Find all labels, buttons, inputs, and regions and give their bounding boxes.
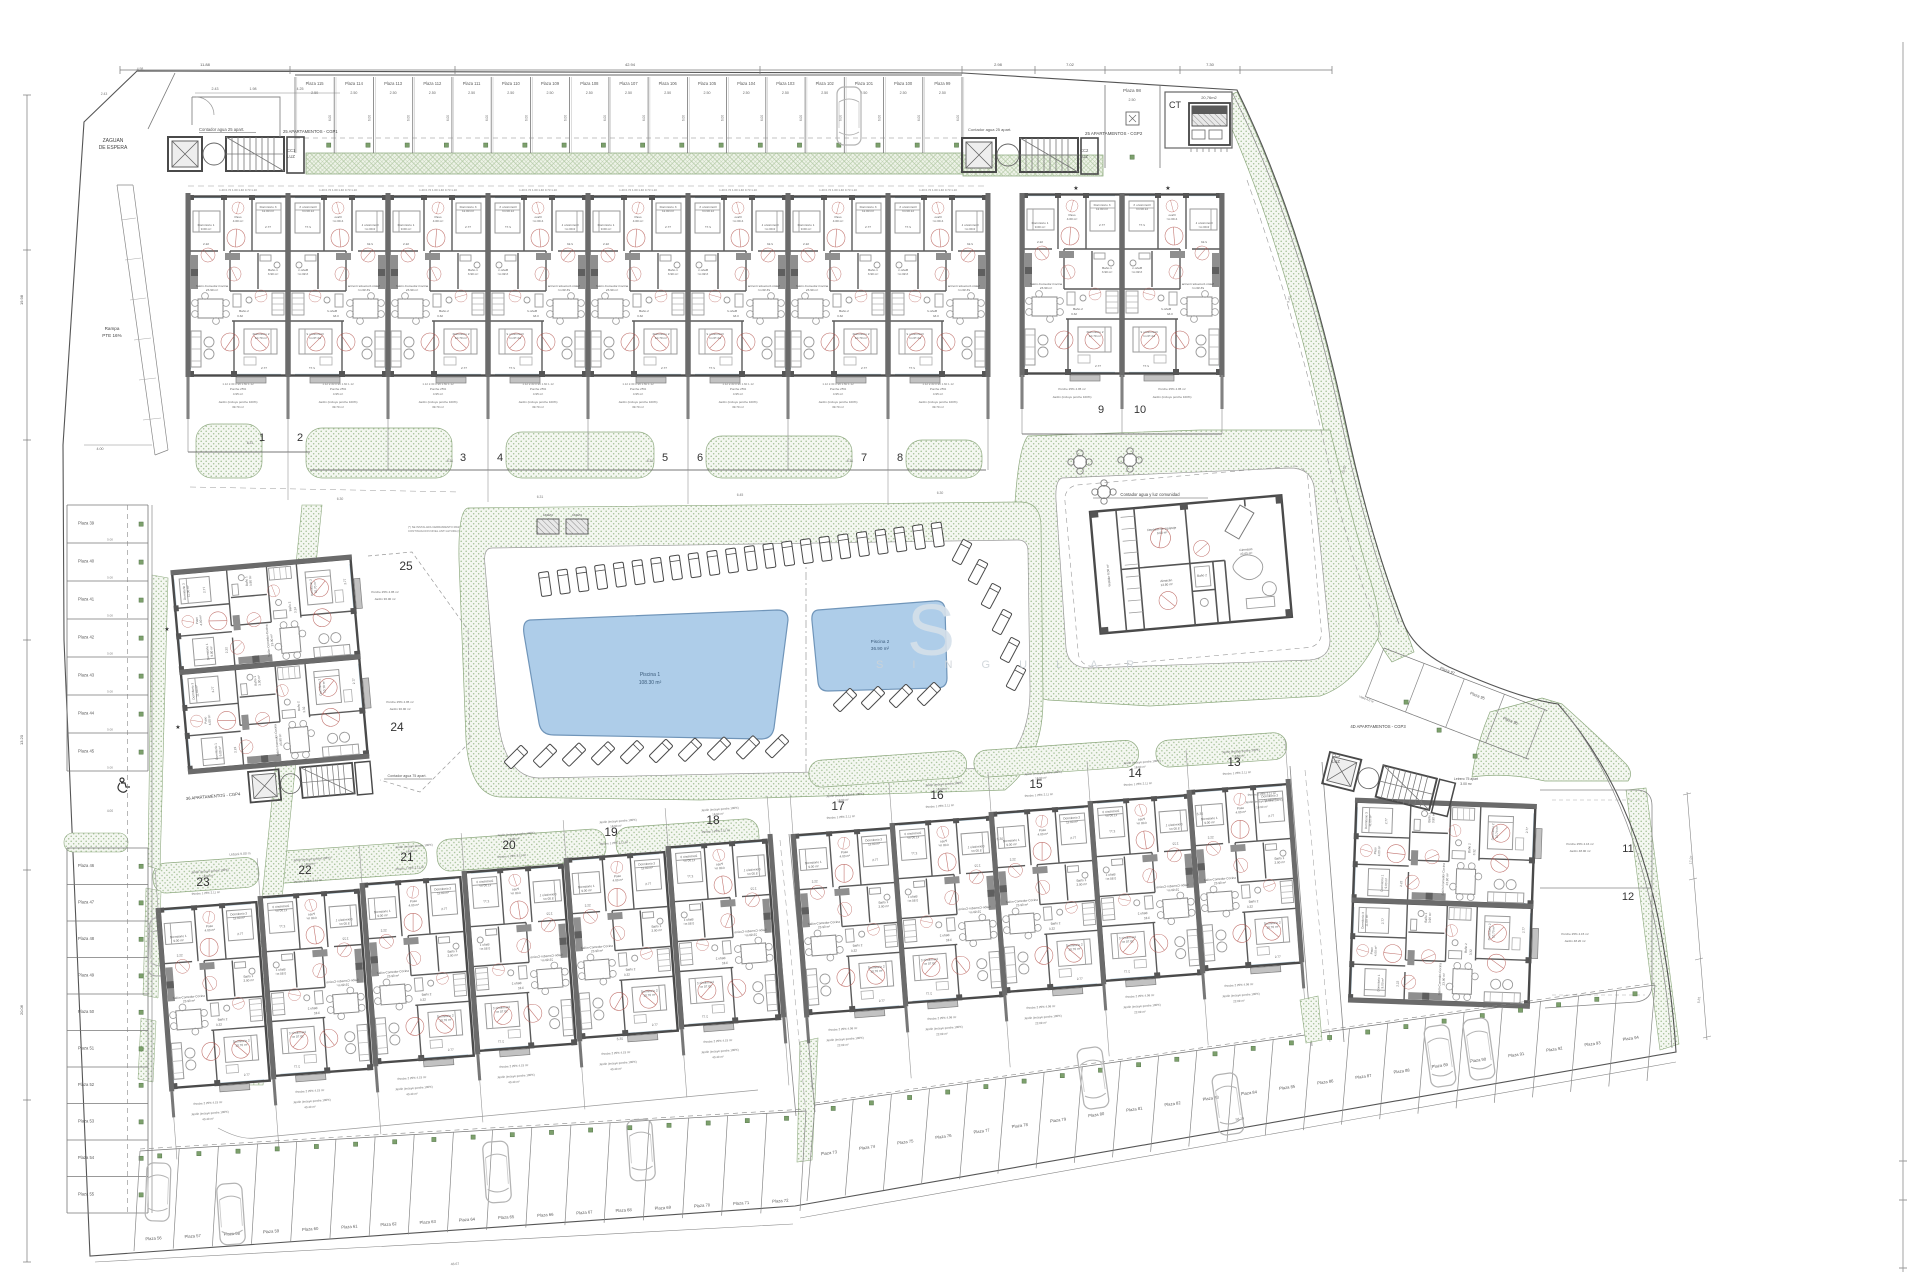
svg-text:25: 25 (399, 559, 413, 573)
svg-text:Plaza 81: Plaza 81 (1126, 1105, 1143, 1112)
svg-text:Plaza 98: Plaza 98 (1123, 88, 1141, 93)
svg-text:6.00: 6.00 (956, 115, 960, 121)
svg-text:Plaza 48: Plaza 48 (78, 936, 95, 941)
svg-text:1.12 2.30 0.96 1.60 1.12: 1.12 2.30 0.96 1.60 1.12 (722, 382, 754, 386)
svg-text:36.90 m²: 36.90 m² (871, 646, 890, 651)
svg-text:Plaza 101: Plaza 101 (855, 81, 874, 86)
svg-text:6.00: 6.00 (917, 115, 921, 121)
svg-text:2.50: 2.50 (1129, 98, 1136, 102)
svg-text:18.90 m²: 18.90 m² (508, 837, 520, 842)
svg-text:2: 2 (297, 432, 303, 444)
svg-text:Jardín (incluye porche 100%): Jardín (incluye porche 100%) (925, 1025, 963, 1032)
svg-text:Plaza 77: Plaza 77 (973, 1127, 990, 1134)
svg-text:3: 3 (460, 452, 466, 464)
svg-text:Porche 2 25% 4.15 m²: Porche 2 25% 4.15 m² (295, 1088, 324, 1094)
svg-text:19.98: 19.98 (19, 294, 24, 305)
svg-text:8: 8 (897, 452, 903, 464)
svg-text:40.40 m²: 40.40 m² (304, 1105, 316, 1110)
svg-text:Plaza 60: Plaza 60 (302, 1226, 319, 1232)
svg-text:Porche 2 25% 4.15 m²: Porche 2 25% 4.15 m² (499, 1063, 528, 1069)
svg-text:Plaza 57: Plaza 57 (184, 1233, 201, 1239)
svg-text:Plaza 53: Plaza 53 (78, 1118, 95, 1123)
svg-text:Porche 2 25% 4.06 m²: Porche 2 25% 4.06 m² (1224, 982, 1253, 988)
svg-text:Plaza 42: Plaza 42 (78, 634, 95, 639)
svg-text:Plaza 65: Plaza 65 (498, 1214, 515, 1220)
svg-text:6.00: 6.00 (407, 115, 411, 121)
svg-text:4.95 m²: 4.95 m² (733, 392, 743, 396)
svg-text:Porche 1 25% 2.11 m²: Porche 1 25% 2.11 m² (294, 878, 323, 884)
svg-text:1.40 0.72 1.60 1.40 0.73 1.10: 1.40 0.72 1.60 1.40 0.73 1.10 (319, 188, 357, 192)
svg-text:1.98: 1.98 (250, 87, 257, 91)
svg-text:1.40 0.72 1.60 1.40 0.73 1.10: 1.40 0.72 1.60 1.40 0.73 1.10 (419, 188, 457, 192)
svg-text:CC1: CC1 (287, 148, 296, 153)
svg-text:2.50: 2.50 (743, 91, 750, 95)
svg-text:Porche 25% 4.15 m²: Porche 25% 4.15 m² (1561, 932, 1588, 936)
svg-text:CT: CT (1169, 100, 1181, 110)
svg-text:Porche 25%: Porche 25% (430, 387, 447, 391)
svg-text:2.50: 2.50 (821, 91, 828, 95)
svg-text:Plaza 106: Plaza 106 (659, 81, 678, 86)
svg-text:9.47: 9.47 (1286, 296, 1292, 304)
svg-text:36 APARTAMENTOS - CGP4: 36 APARTAMENTOS - CGP4 (186, 791, 242, 801)
svg-text:42.94: 42.94 (625, 62, 636, 67)
svg-text:Plaza 52: Plaza 52 (78, 1082, 95, 1087)
svg-text:Letrero 75 apart: Letrero 75 apart (1454, 777, 1478, 781)
svg-text:Plaza 49: Plaza 49 (78, 972, 95, 977)
svg-text:Porche 2 25% 4.06 m²: Porche 2 25% 4.06 m² (927, 1015, 956, 1021)
svg-text:18.90 m²: 18.90 m² (304, 862, 316, 867)
svg-text:Porche 25% 4.16 m²: Porche 25% 4.16 m² (1566, 842, 1593, 846)
svg-text:Contador agua y luz comunidad: Contador agua y luz comunidad (1120, 492, 1180, 497)
svg-text:4.95 m²: 4.95 m² (233, 392, 243, 396)
svg-text:12: 12 (1622, 891, 1634, 903)
svg-text:40.40 m²: 40.40 m² (202, 1117, 214, 1122)
svg-text:2.50: 2.50 (900, 91, 907, 95)
svg-text:Plaza 40: Plaza 40 (78, 558, 95, 563)
svg-text:Porche 25%: Porche 25% (330, 387, 347, 391)
svg-text:Plaza 69: Plaza 69 (654, 1205, 671, 1211)
svg-text:6.35: 6.35 (616, 1037, 623, 1041)
svg-text:2.50: 2.50 (468, 91, 475, 95)
svg-text:Plaza 72: Plaza 72 (772, 1198, 789, 1204)
svg-text:1.12 2.30 0.96 1.60 1.12: 1.12 2.30 0.96 1.60 1.12 (322, 382, 354, 386)
svg-text:39.70 m²: 39.70 m² (832, 405, 844, 409)
svg-text:Plaza 86: Plaza 86 (1317, 1078, 1334, 1085)
svg-text:Porche 25%: Porche 25% (930, 387, 947, 391)
svg-text:4.95 m²: 4.95 m² (633, 392, 643, 396)
svg-text:Piscina 2: Piscina 2 (871, 639, 890, 644)
svg-text:6.00: 6.00 (721, 115, 725, 121)
svg-text:2.50: 2.50 (586, 91, 593, 95)
svg-text:Plaza 47: Plaza 47 (78, 899, 95, 904)
svg-text:Plaza 68: Plaza 68 (615, 1207, 632, 1213)
svg-text:Plaza 112: Plaza 112 (423, 81, 442, 86)
svg-text:2.50: 2.50 (782, 91, 789, 95)
svg-text:Plaza 61: Plaza 61 (341, 1223, 358, 1229)
svg-text:Plaza 102: Plaza 102 (816, 81, 835, 86)
svg-text:Plaza 64: Plaza 64 (459, 1216, 476, 1222)
svg-text:20.06: 20.06 (19, 1004, 24, 1015)
svg-text:Plaza 85: Plaza 85 (1279, 1084, 1296, 1091)
svg-text:39.70 m²: 39.70 m² (232, 405, 244, 409)
svg-text:6.30: 6.30 (416, 1057, 423, 1061)
svg-text:Porche 25% 4.95 m²: Porche 25% 4.95 m² (371, 590, 398, 594)
svg-text:5.00: 5.00 (107, 689, 113, 693)
svg-text:Plaza 50: Plaza 50 (78, 1009, 95, 1014)
svg-text:6.00: 6.00 (642, 115, 646, 121)
svg-text:Plaza 88: Plaza 88 (1393, 1067, 1410, 1074)
svg-text:7.30: 7.30 (1206, 62, 1215, 67)
svg-text:Plaza 78: Plaza 78 (1011, 1122, 1028, 1129)
svg-text:22.09 m²: 22.09 m² (936, 1032, 948, 1037)
svg-text:Plaza 99: Plaza 99 (934, 81, 951, 86)
svg-text:Plaza 100: Plaza 100 (894, 81, 913, 86)
svg-text:Contador agua 25 apart.: Contador agua 25 apart. (199, 127, 244, 132)
svg-text:4.95 m²: 4.95 m² (533, 392, 543, 396)
svg-text:Plaza 92: Plaza 92 (1546, 1045, 1563, 1052)
svg-text:CASETA: CASETA (572, 513, 582, 517)
svg-text:4.95 m²: 4.95 m² (933, 392, 943, 396)
svg-text:11.88: 11.88 (200, 62, 210, 67)
svg-text:Plaza 115: Plaza 115 (306, 81, 325, 86)
svg-text:Jardín (incluye porche 100%): Jardín (incluye porche 100%) (191, 1110, 229, 1117)
svg-text:40.40 m²: 40.40 m² (508, 1080, 520, 1085)
svg-text:CC3: CC3 (1332, 753, 1341, 758)
svg-text:Jardín (incluye porche 100%): Jardín (incluye porche 100%) (1024, 1014, 1062, 1021)
svg-text:★: ★ (1073, 185, 1078, 192)
svg-text:Porche 25%: Porche 25% (230, 387, 247, 391)
svg-text:Porche 25% 4.95 m²: Porche 25% 4.95 m² (1058, 387, 1085, 391)
svg-text:2.50: 2.50 (664, 91, 671, 95)
svg-text:18.90 m²: 18.90 m² (406, 849, 418, 854)
svg-text:5.00: 5.00 (107, 613, 113, 617)
svg-text:Plaza 114: Plaza 114 (345, 81, 364, 86)
svg-text:6.30: 6.30 (337, 497, 344, 501)
svg-text:17.07: 17.07 (1689, 855, 1694, 864)
svg-text:Jardín (incluye porche 100%): Jardín (incluye porche 100%) (1052, 395, 1091, 399)
svg-text:6.00: 6.00 (446, 115, 450, 121)
svg-text:Contador agua 75 apart.: Contador agua 75 apart. (388, 774, 427, 778)
svg-text:Jardín (incluye porche 100%): Jardín (incluye porche 100%) (818, 400, 857, 404)
svg-text:Jardín (incluye porche 100%): Jardín (incluye porche 100%) (618, 400, 657, 404)
svg-text:Jardín (incluye porche 100%): Jardín (incluye porche 100%) (1222, 992, 1260, 999)
svg-text:Porche 2 25% 4.15 m²: Porche 2 25% 4.15 m² (601, 1050, 630, 1056)
svg-text:Porche 2 25% 4.06 m²: Porche 2 25% 4.06 m² (1026, 1004, 1055, 1010)
svg-text:6.31: 6.31 (847, 459, 854, 463)
svg-text:9: 9 (1098, 404, 1104, 416)
svg-text:4.00: 4.00 (97, 447, 104, 451)
svg-text:4.00: 4.00 (107, 809, 113, 813)
svg-text:6.31: 6.31 (537, 495, 544, 499)
svg-text:39.70 m²: 39.70 m² (432, 405, 444, 409)
svg-text:Plaza 56: Plaza 56 (145, 1235, 162, 1241)
svg-text:Plaza 97: Plaza 97 (1439, 665, 1456, 676)
svg-text:Plaza 46: Plaza 46 (78, 863, 95, 868)
svg-text:2.50: 2.50 (507, 91, 514, 95)
svg-text:2.50: 2.50 (390, 91, 397, 95)
svg-text:108.30 m²: 108.30 m² (639, 680, 662, 686)
svg-text:24: 24 (390, 720, 404, 734)
svg-text:Plaza 103: Plaza 103 (776, 81, 795, 86)
svg-text:Plaza 113: Plaza 113 (384, 81, 403, 86)
svg-text:1.12 2.30 0.96 1.60 1.12: 1.12 2.30 0.96 1.60 1.12 (422, 382, 454, 386)
svg-text:6.00: 6.00 (524, 115, 528, 121)
svg-text:Plaza 76: Plaza 76 (935, 1133, 952, 1140)
svg-text:★: ★ (164, 626, 169, 633)
svg-text:Plaza 66: Plaza 66 (537, 1212, 554, 1218)
svg-text:6.00: 6.00 (368, 115, 372, 121)
svg-text:5: 5 (662, 452, 668, 464)
svg-text:18.90 m²: 18.90 m² (610, 824, 622, 829)
svg-text:Porche 25%: Porche 25% (730, 387, 747, 391)
svg-text:Jardín 48.90 m²: Jardín 48.90 m² (1569, 849, 1590, 853)
svg-text:Plaza 55: Plaza 55 (78, 1191, 95, 1196)
svg-text:11: 11 (1622, 843, 1633, 855)
svg-text:Porche 2 25% 4.06 m²: Porche 2 25% 4.06 m² (828, 1026, 857, 1032)
svg-text:Plaza 80: Plaza 80 (1088, 1111, 1105, 1118)
svg-text:Plaza 79: Plaza 79 (1050, 1116, 1067, 1123)
svg-text:18.90 m²: 18.90 m² (1256, 805, 1268, 810)
svg-text:★: ★ (175, 724, 180, 731)
svg-text:6.30: 6.30 (937, 491, 944, 495)
svg-text:Jardín 36.00 m²: Jardín 36.00 m² (374, 597, 395, 601)
svg-text:Porche 1 25% 2.11 m²: Porche 1 25% 2.11 m² (827, 814, 856, 820)
svg-text:25 APARTAMENTOS - CGP2: 25 APARTAMENTOS - CGP2 (1085, 131, 1143, 136)
svg-text:Plaza 91: Plaza 91 (1508, 1051, 1525, 1058)
svg-text:1.40 0.72 1.60 1.40 0.73 1.10: 1.40 0.72 1.60 1.40 0.73 1.10 (519, 188, 557, 192)
svg-text:1.40 0.72 1.60 1.40 0.73 1.10: 1.40 0.72 1.60 1.40 0.73 1.10 (719, 188, 757, 192)
svg-text:25 APARTAMENTOS - CGP1: 25 APARTAMENTOS - CGP1 (283, 129, 338, 134)
svg-text:Jardín (incluye porche 100%): Jardín (incluye porche 100%) (518, 400, 557, 404)
svg-text:Plaza 51: Plaza 51 (78, 1045, 95, 1050)
svg-text:1.12 2.30 0.96 1.60 1.12: 1.12 2.30 0.96 1.60 1.12 (622, 382, 654, 386)
svg-text:Plaza 45: Plaza 45 (78, 748, 95, 753)
svg-text:Porche 25%: Porche 25% (630, 387, 647, 391)
svg-text:Jardín 48.20 m²: Jardín 48.20 m² (1564, 939, 1585, 943)
svg-text:Plaza 70: Plaza 70 (694, 1202, 711, 1208)
svg-text:Porche 1 25% 2.11 m²: Porche 1 25% 2.11 m² (1025, 792, 1054, 798)
svg-text:Jardín (incluye porche 100%): Jardín (incluye porche 100%) (1152, 395, 1191, 399)
svg-text:DE ESPERA: DE ESPERA (99, 145, 128, 151)
svg-text:Plaza 71: Plaza 71 (733, 1200, 750, 1206)
svg-text:Plaza 110: Plaza 110 (502, 81, 521, 86)
svg-text:7: 7 (861, 452, 867, 464)
svg-text:39.70 m²: 39.70 m² (732, 405, 744, 409)
svg-text:6.00: 6.00 (328, 115, 332, 121)
svg-text:4: 4 (497, 452, 503, 464)
svg-text:Jardín (incluye porche 100%): Jardín (incluye porche 100%) (718, 400, 757, 404)
svg-text:Plaza 82: Plaza 82 (1164, 1100, 1181, 1107)
svg-text:Vado 4.0 m: Vado 4.0 m (1359, 694, 1375, 703)
svg-text:2.98: 2.98 (994, 62, 1003, 67)
svg-text:22.09 m²: 22.09 m² (1233, 999, 1245, 1004)
svg-text:Porche 2 25% 4.15 m²: Porche 2 25% 4.15 m² (703, 1038, 732, 1044)
svg-text:Porche 1 25% 2.11 m²: Porche 1 25% 2.11 m² (1223, 770, 1252, 776)
svg-text:40.40 m²: 40.40 m² (610, 1067, 622, 1072)
svg-text:Porche 25%: Porche 25% (530, 387, 547, 391)
svg-text:LUZ: LUZ (1332, 759, 1340, 764)
svg-text:Jardín (incluye porche 100%): Jardín (incluye porche 100%) (293, 1098, 331, 1105)
svg-text:Jardín (incluye porche 100%): Jardín (incluye porche 100%) (497, 1073, 535, 1080)
svg-text:2.43: 2.43 (101, 92, 108, 96)
svg-text:1.40 0.72 1.60 1.40 0.73 1.10: 1.40 0.72 1.60 1.40 0.73 1.10 (919, 188, 957, 192)
svg-text:22.09 m²: 22.09 m² (1134, 1010, 1146, 1015)
svg-text:Jardín (incluye porche 100%): Jardín (incluye porche 100%) (318, 400, 357, 404)
svg-text:40.40 m²: 40.40 m² (712, 1055, 724, 1060)
svg-text:1.12 2.30 0.96 1.60 1.12: 1.12 2.30 0.96 1.60 1.12 (922, 382, 954, 386)
svg-text:4.25: 4.25 (297, 87, 304, 91)
svg-text:2.50: 2.50 (429, 91, 436, 95)
svg-text:39.70 m²: 39.70 m² (532, 405, 544, 409)
svg-text:4.95 m²: 4.95 m² (433, 392, 443, 396)
svg-text:Jardín (incluye porche 100%): Jardín (incluye porche 100%) (218, 400, 257, 404)
svg-text:2.50: 2.50 (350, 91, 357, 95)
svg-text:39.70 m²: 39.70 m² (932, 405, 944, 409)
svg-text:13.20: 13.20 (19, 734, 24, 745)
svg-text:Plaza 84: Plaza 84 (1240, 1089, 1257, 1096)
svg-text:Plaza 104: Plaza 104 (737, 81, 756, 86)
svg-text:Jardín 30.90 m²: Jardín 30.90 m² (389, 707, 410, 711)
svg-text:22.09 m²: 22.09 m² (837, 1043, 849, 1048)
svg-text:Plaza 39: Plaza 39 (78, 520, 95, 525)
svg-text:1.12 2.30 0.96 1.60 1.12: 1.12 2.30 0.96 1.60 1.12 (222, 382, 254, 386)
svg-text:6.45: 6.45 (737, 493, 744, 497)
svg-text:Contador agua 25 apart.: Contador agua 25 apart. (968, 127, 1011, 132)
svg-text:Plaza 74: Plaza 74 (859, 1144, 876, 1151)
svg-text:Porche 25% 4.95 m²: Porche 25% 4.95 m² (1158, 387, 1185, 391)
svg-text:Plaza 89: Plaza 89 (1431, 1062, 1448, 1069)
svg-text:6.00: 6.00 (603, 115, 607, 121)
svg-text:Plaza 105: Plaza 105 (698, 81, 717, 86)
svg-text:4.98: 4.98 (137, 67, 144, 71)
svg-text:18.90 m²: 18.90 m² (837, 798, 849, 803)
svg-text:2.50: 2.50 (547, 91, 554, 95)
svg-text:1: 1 (259, 432, 265, 444)
svg-text:S I N G U L A R: S I N G U L A R (876, 659, 1147, 671)
svg-text:Porche 1 25% 2.11 m²: Porche 1 25% 2.11 m² (1124, 781, 1153, 787)
svg-text:Plaza 90: Plaza 90 (1470, 1056, 1487, 1063)
svg-text:CC2: CC2 (1080, 148, 1089, 153)
svg-text:18.90 m²: 18.90 m² (1233, 754, 1245, 759)
svg-text:6.31: 6.31 (647, 459, 654, 463)
svg-text:18.90 m²: 18.90 m² (712, 812, 724, 817)
svg-text:18.90 m²: 18.90 m² (1134, 765, 1146, 770)
svg-text:Porche 2 25% 4.15 m²: Porche 2 25% 4.15 m² (397, 1075, 426, 1081)
svg-text:LUZ: LUZ (1080, 154, 1088, 159)
svg-text:Plaza 95: Plaza 95 (1469, 690, 1486, 701)
svg-text:Plaza 108: Plaza 108 (580, 81, 599, 86)
svg-text:5.00: 5.00 (107, 575, 113, 579)
svg-text:40.40 m²: 40.40 m² (406, 1092, 418, 1097)
svg-text:48.67: 48.67 (451, 1262, 460, 1266)
svg-text:6.31: 6.31 (447, 459, 454, 463)
svg-text:6.00: 6.00 (878, 115, 882, 121)
svg-text:6.30: 6.30 (1196, 812, 1203, 816)
svg-text:CASETA: CASETA (543, 513, 553, 517)
svg-text:Plaza 54: Plaza 54 (78, 1155, 95, 1160)
svg-text:Porche 1 25% 2.11 m²: Porche 1 25% 2.11 m² (926, 803, 955, 809)
svg-text:Plaza 109: Plaza 109 (541, 81, 560, 86)
svg-text:1.40 0.72 1.60 1.40 0.73 1.10: 1.40 0.72 1.60 1.40 0.73 1.10 (619, 188, 657, 192)
svg-text:6.00: 6.00 (760, 115, 764, 121)
svg-text:Plaza 93: Plaza 93 (1584, 1040, 1601, 1047)
svg-text:5.00: 5.00 (107, 537, 113, 541)
svg-text:1.40 0.72 1.60 1.40 0.73 1.10: 1.40 0.72 1.60 1.40 0.73 1.10 (819, 188, 857, 192)
svg-text:5.00: 5.00 (107, 765, 113, 769)
svg-text:Porche 2 25% 4.06 m²: Porche 2 25% 4.06 m² (1125, 993, 1154, 999)
svg-text:6.00: 6.00 (799, 115, 803, 121)
svg-text:2.43: 2.43 (212, 87, 219, 91)
svg-text:6.00: 6.00 (564, 115, 568, 121)
svg-text:20,76m2: 20,76m2 (1201, 95, 1217, 100)
svg-text:PTE 16%: PTE 16% (102, 333, 121, 338)
svg-text:Plaza 41: Plaza 41 (78, 596, 95, 601)
svg-text:LUZ: LUZ (287, 154, 295, 159)
svg-text:4.95 m²: 4.95 m² (833, 392, 843, 396)
svg-text:Jardín (incluye porche 100%): Jardín (incluye porche 100%) (826, 1036, 864, 1043)
svg-text:Plaza 62: Plaza 62 (380, 1221, 397, 1227)
svg-text:Plaza 44: Plaza 44 (78, 710, 95, 715)
svg-text:Plaza 111: Plaza 111 (463, 81, 481, 86)
svg-text:39.70 m²: 39.70 m² (632, 405, 644, 409)
svg-text:Rampa: Rampa (105, 326, 120, 331)
svg-text:4D APARTAMENTOS - CGP3: 4D APARTAMENTOS - CGP3 (1350, 724, 1406, 729)
svg-text:1.12 2.30 0.96 1.60 1.12: 1.12 2.30 0.96 1.60 1.12 (822, 382, 854, 386)
svg-text:4.95 m²: 4.95 m² (333, 392, 343, 396)
svg-text:6.00: 6.00 (485, 115, 489, 121)
svg-text:6.30: 6.30 (996, 837, 1003, 841)
svg-text:Jardín (incluye porche 100%): Jardín (incluye porche 100%) (418, 400, 457, 404)
svg-text:Piscina 1: Piscina 1 (640, 672, 661, 678)
svg-text:Jardín (incluye porche 100%): Jardín (incluye porche 100%) (918, 400, 957, 404)
svg-text:5.00: 5.00 (107, 651, 113, 655)
svg-text:Urbani 9.00 m: Urbani 9.00 m (229, 851, 251, 856)
svg-text:Plaza 94: Plaza 94 (1622, 1035, 1639, 1042)
svg-text:Plaza 87: Plaza 87 (1355, 1073, 1372, 1080)
svg-text:2.50: 2.50 (939, 91, 946, 95)
svg-text:ZAGUAN: ZAGUAN (103, 138, 124, 144)
svg-text:5.81: 5.81 (1697, 996, 1702, 1003)
svg-text:Plaza 67: Plaza 67 (576, 1209, 593, 1215)
svg-text:1.12 2.30 0.96 1.60 1.12: 1.12 2.30 0.96 1.60 1.12 (522, 382, 554, 386)
svg-text:2.50: 2.50 (704, 91, 711, 95)
svg-text:7.02: 7.02 (1066, 62, 1075, 67)
svg-text:Plaza 63: Plaza 63 (419, 1219, 436, 1225)
svg-text:39.70 m²: 39.70 m² (332, 405, 344, 409)
svg-text:Porche 25%: Porche 25% (830, 387, 847, 391)
svg-text:Jardín (incluye porche 100%): Jardín (incluye porche 100%) (1123, 1003, 1161, 1010)
svg-text:6: 6 (697, 452, 703, 464)
svg-text:Porche 2 25% 4.15 m²: Porche 2 25% 4.15 m² (193, 1100, 222, 1106)
svg-text:5.00: 5.00 (107, 727, 113, 731)
svg-text:22.09 m²: 22.09 m² (1035, 1021, 1047, 1026)
svg-text:1.40 0.72 1.60 1.40 0.73 1.10: 1.40 0.72 1.60 1.40 0.73 1.10 (219, 188, 257, 192)
svg-text:6.31: 6.31 (247, 441, 254, 445)
svg-text:18.90 m²: 18.90 m² (1035, 776, 1047, 781)
svg-text:Plaza 75: Plaza 75 (897, 1138, 914, 1145)
svg-text:Jardín (incluye porche 100%): Jardín (incluye porche 100%) (701, 1048, 739, 1055)
svg-text:18.90 m²: 18.90 m² (936, 787, 948, 792)
svg-text:Porche 1 25% 2.11 m²: Porche 1 25% 2.11 m² (192, 890, 221, 896)
svg-text:10: 10 (1134, 404, 1146, 416)
svg-text:Plaza 107: Plaza 107 (619, 81, 638, 86)
svg-text:Jardín (incluye porche 100%): Jardín (incluye porche 100%) (395, 1085, 433, 1092)
svg-text:Plaza 43: Plaza 43 (78, 672, 95, 677)
svg-text:3.00 m²: 3.00 m² (1460, 782, 1472, 786)
svg-text:Plaza 73: Plaza 73 (820, 1149, 837, 1156)
svg-text:★: ★ (1165, 185, 1170, 192)
svg-text:18.90 m²: 18.90 m² (202, 874, 214, 879)
